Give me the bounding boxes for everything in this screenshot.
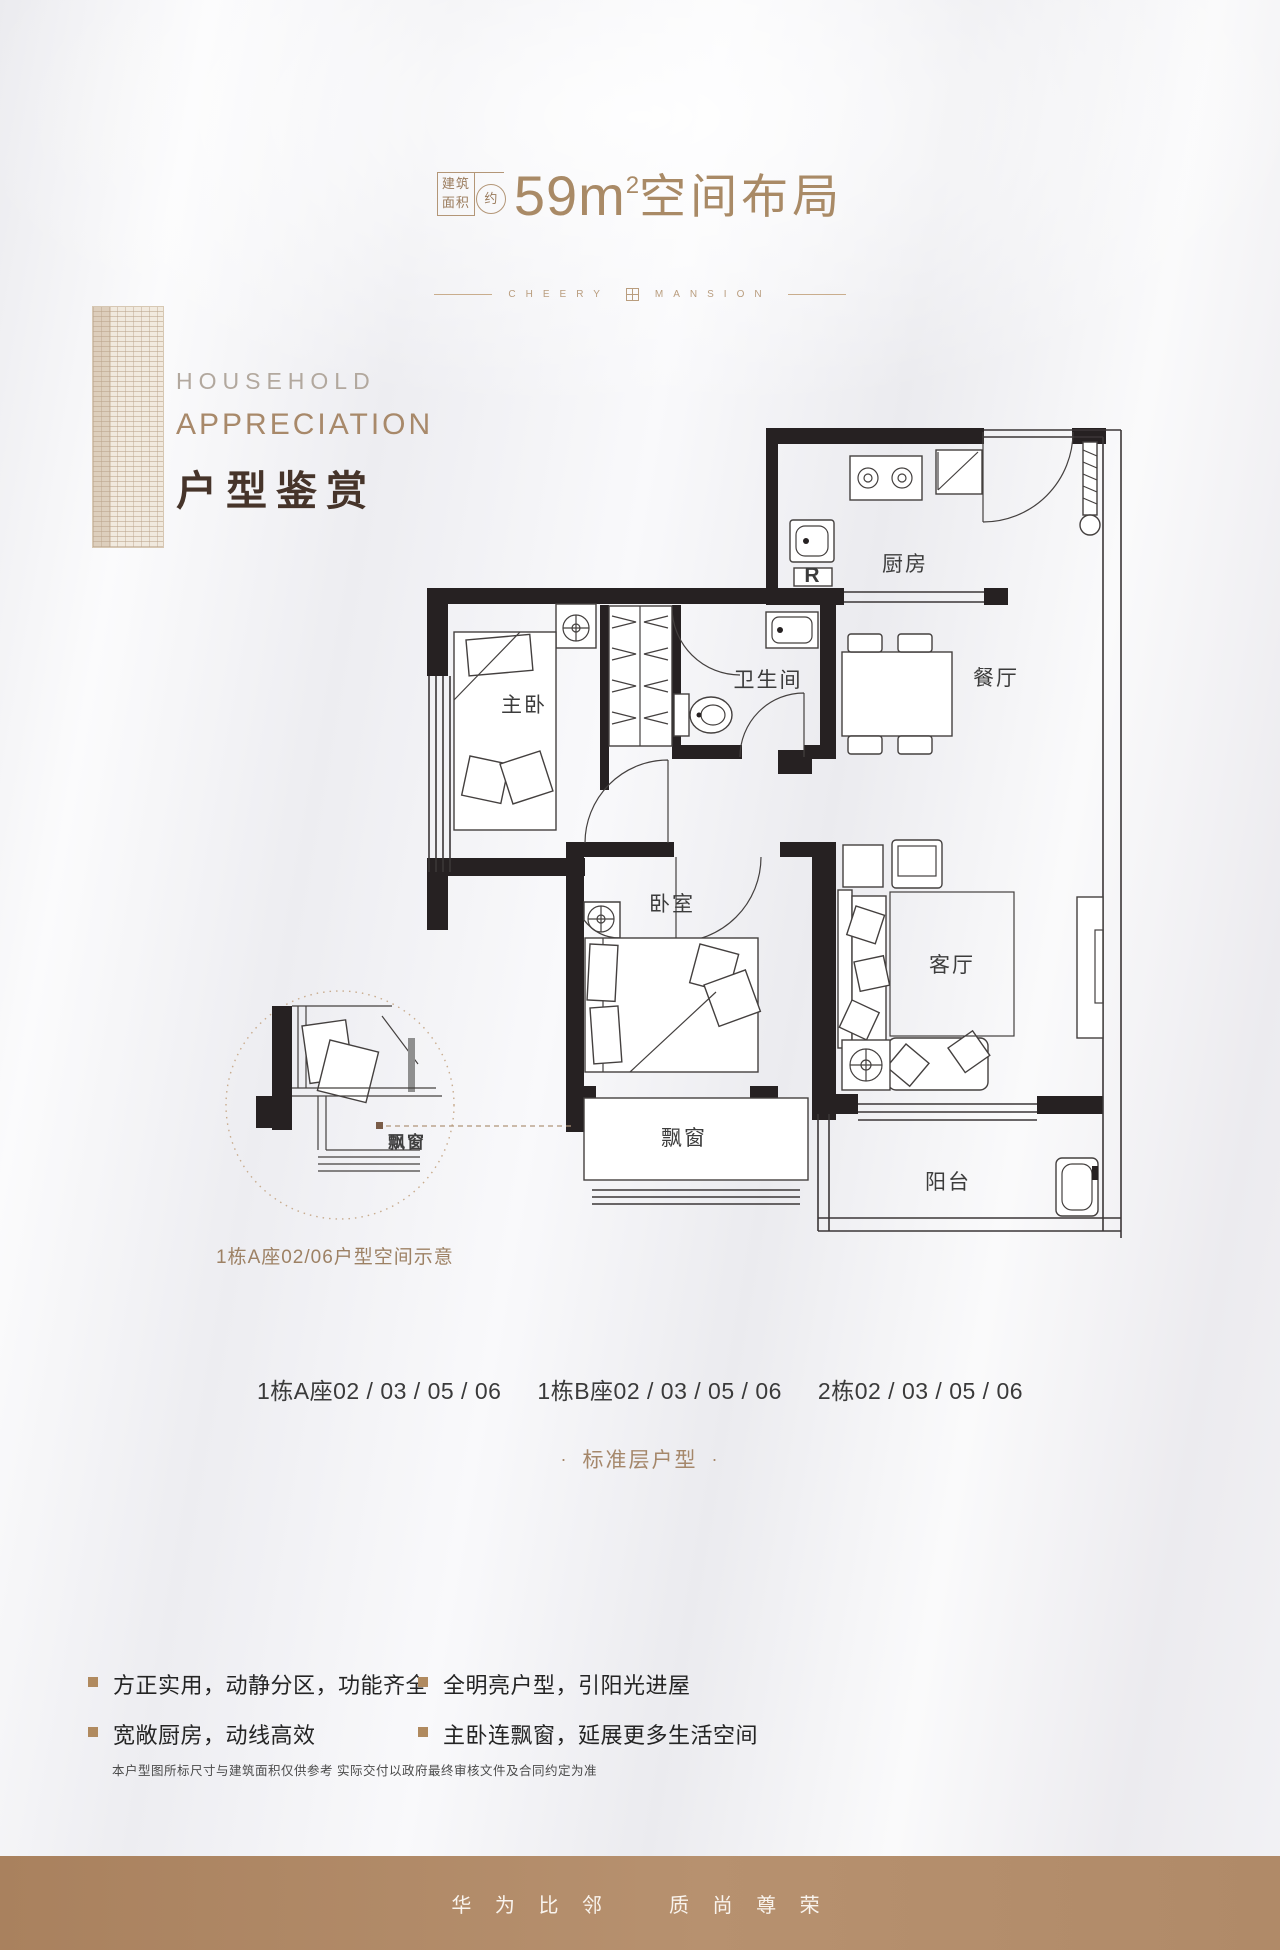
feature-text: 全明亮户型，引阳光进屋 (443, 1668, 691, 1700)
building-area-box: 建筑 面积 (437, 172, 475, 216)
brand-divider: CHEERY MANSION (0, 288, 1280, 301)
units-group-1: 1栋A座02 / 03 / 05 / 06 (257, 1372, 501, 1406)
feature-text: 宽敞厨房，动线高效 (113, 1718, 316, 1750)
room-label-master: 主卧 (501, 694, 547, 717)
feature-text: 主卧连飘窗，延展更多生活空间 (443, 1718, 758, 1750)
balcony-washer (1056, 1158, 1098, 1216)
brand-word-right: MANSION (655, 289, 772, 300)
brand-word-left: CHEERY (508, 289, 610, 300)
footer-slogan-left: 华 为 比 邻 (451, 1889, 611, 1918)
divider-line-left (434, 294, 492, 295)
units-group-2: 1栋B座02 / 03 / 05 / 06 (537, 1372, 781, 1406)
area-box-line2: 面积 (442, 194, 470, 213)
room-label-bedroom: 卧室 (649, 893, 695, 916)
tower-illustration (92, 306, 164, 548)
poster-page: 建筑 面积 约 59m2空间布局 CHEERY MANSION HOUSEHOL… (0, 0, 1280, 1950)
bullet-square-icon (418, 1727, 428, 1737)
floor-type-row: · 标准层户型 · (0, 1444, 1280, 1474)
heading-en-line1: HOUSEHOLD (176, 368, 433, 395)
floor-plan: R (200, 420, 1130, 1300)
room-label-balcony: 阳台 (925, 1171, 971, 1194)
bullet-square-icon (88, 1727, 98, 1737)
detail-baywindow-label: 飘窗 (388, 1132, 426, 1152)
floor-type-dot-right: · (712, 1449, 720, 1470)
page-title: 建筑 面积 约 59m2空间布局 (0, 158, 1280, 227)
wardrobe (609, 606, 672, 746)
room-label-baywindow: 飘窗 (661, 1127, 707, 1150)
feature-item-3: 全明亮户型，引阳光进屋 (418, 1668, 691, 1700)
bullet-square-icon (418, 1677, 428, 1687)
fridge-label: R (804, 564, 821, 587)
divider-line-right (788, 294, 846, 295)
feature-item-1: 方正实用，动静分区，功能齐全 (88, 1668, 428, 1700)
room-label-dining: 餐厅 (973, 667, 1019, 690)
dining-set (842, 634, 952, 754)
bullet-square-icon (88, 1677, 98, 1687)
room-label-kitchen: 厨房 (882, 553, 928, 576)
units-group-3: 2栋02 / 03 / 05 / 06 (818, 1372, 1023, 1406)
plan-caption: 1栋A座02/06户型空间示意 (216, 1242, 454, 1269)
baywindow-detail: 飘窗 (226, 991, 572, 1219)
brand-logo-icon (626, 288, 639, 301)
footer-slogan-right: 质 尚 尊 荣 (669, 1889, 829, 1918)
room-label-bathroom: 卫生间 (734, 669, 803, 692)
floor-type-label: 标准层户型 (583, 1444, 698, 1474)
feature-text: 方正实用，动静分区，功能齐全 (113, 1668, 428, 1700)
entry-window (1080, 442, 1100, 535)
area-superscript: 2 (626, 172, 639, 199)
bedroom-bed (584, 902, 760, 1072)
area-value: 59m (514, 164, 626, 227)
area-box-line1: 建筑 (442, 175, 470, 194)
feature-item-4: 主卧连飘窗，延展更多生活空间 (418, 1718, 758, 1750)
approx-circle: 约 (476, 184, 506, 214)
floor-type-dot-left: · (561, 1449, 569, 1470)
disclaimer-text: 本户型图所标尺寸与建筑面积仅供参考 实际交付以政府最终审核文件及合同约定为准 (112, 1760, 597, 1779)
master-bed (454, 632, 556, 830)
units-row: 1栋A座02 / 03 / 05 / 06 1栋B座02 / 03 / 05 /… (0, 1372, 1280, 1406)
footer-bar: 华 为 比 邻 质 尚 尊 荣 (0, 1856, 1280, 1950)
title-suffix: 空间布局 (639, 170, 843, 223)
room-label-living: 客厅 (929, 954, 975, 977)
feature-item-2: 宽敞厨房，动线高效 (88, 1718, 316, 1750)
title-text: 59m2空间布局 (514, 158, 843, 227)
